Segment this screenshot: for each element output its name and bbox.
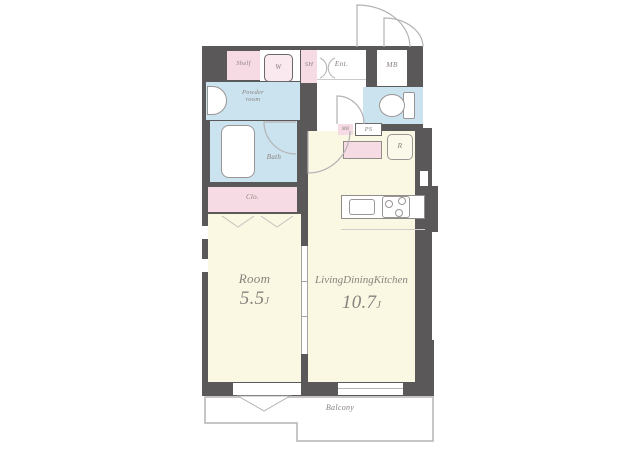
- bedroom-balcony-window: [233, 383, 301, 395]
- utility-counter-area: [343, 141, 382, 159]
- floor-plan: Shelf W SH Ent. MB Powder room Bath Clo.…: [0, 0, 640, 452]
- sliding-window-line: [338, 388, 403, 389]
- meter-box-door-swing-icon: [384, 18, 423, 47]
- wall-niche: [420, 171, 428, 186]
- entrance-door-swing-icon: [357, 5, 410, 47]
- side-window: [202, 259, 208, 272]
- closet-area: [208, 187, 297, 212]
- stove-icon: [382, 196, 410, 218]
- partition-joint-line: [301, 281, 308, 282]
- meter-box-small-area: [338, 124, 353, 135]
- wall-bottom-right-corner: [426, 340, 434, 396]
- balcony-label: Balcony: [290, 403, 390, 412]
- ldk-balcony-window: [338, 383, 403, 395]
- kitchen-sink-icon: [349, 199, 375, 215]
- refrigerator-icon: [387, 134, 413, 160]
- toilet-bowl-icon: [379, 94, 405, 117]
- balcony-door-swing-icon: [238, 396, 290, 411]
- shelf-area: [227, 51, 260, 80]
- counter-front-line: [341, 229, 425, 230]
- meter-box-area: [377, 50, 407, 86]
- balcony-outline: [205, 397, 433, 441]
- side-window: [202, 226, 208, 239]
- bathtub-icon: [221, 125, 255, 178]
- sliding-partition: [301, 246, 308, 354]
- bedroom-area: [208, 214, 301, 382]
- shoe-shelf-area: [301, 50, 317, 83]
- partition-joint-line: [301, 316, 308, 317]
- entrance-step-line: [317, 79, 366, 80]
- entrance-hall-area: [317, 50, 366, 131]
- wall-kitchen-bump: [432, 186, 438, 232]
- pipe-space-area: [355, 123, 382, 136]
- washing-machine-pan-icon: [264, 54, 293, 82]
- ldk-area: [308, 131, 415, 382]
